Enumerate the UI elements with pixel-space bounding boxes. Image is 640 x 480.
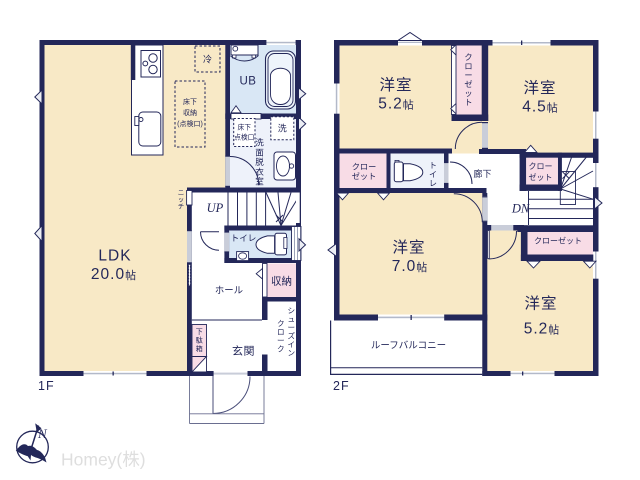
svg-text:面: 面 [255, 147, 264, 157]
svg-text:Homey(株): Homey(株) [61, 450, 146, 470]
svg-text:点検口: 点検口 [234, 133, 254, 142]
svg-text:トイレ: トイレ [231, 233, 257, 243]
svg-text:床下: 床下 [183, 97, 197, 106]
svg-text:チ: チ [178, 203, 185, 211]
svg-text:冷: 冷 [203, 54, 212, 65]
svg-text:N: N [37, 426, 48, 441]
svg-text:洋室: 洋室 [524, 295, 557, 313]
svg-text:クロー: クロー [352, 162, 377, 171]
svg-text:衣: 衣 [255, 166, 264, 177]
svg-text:UP: UP [207, 201, 224, 215]
svg-text:ゼット: ゼット [529, 172, 553, 182]
svg-text:収納: 収納 [183, 108, 197, 117]
svg-text:ッ: ッ [464, 89, 472, 98]
svg-text:ゼット: ゼット [352, 171, 377, 181]
svg-text:ー: ー [464, 71, 472, 80]
svg-text:UB: UB [240, 76, 257, 88]
svg-text:ク: ク [464, 53, 472, 62]
svg-text:ニ: ニ [178, 190, 185, 197]
svg-text:イ: イ [429, 170, 437, 179]
svg-text:床下: 床下 [238, 123, 252, 132]
svg-text:箱: 箱 [196, 344, 203, 353]
svg-text:レ: レ [429, 179, 437, 188]
svg-text:室: 室 [255, 176, 264, 187]
svg-text:ト: ト [429, 161, 437, 170]
svg-text:DN: DN [511, 202, 530, 216]
svg-text:洋室: 洋室 [523, 79, 556, 97]
svg-text:ト: ト [464, 98, 472, 107]
svg-text:ッ: ッ [178, 197, 185, 204]
svg-text:洋室: 洋室 [392, 239, 425, 257]
svg-text:洗: 洗 [255, 137, 264, 148]
svg-text:駄: 駄 [196, 336, 203, 345]
svg-text:LDK: LDK [98, 248, 131, 265]
svg-text:玄関: 玄関 [232, 344, 255, 358]
svg-text:洗: 洗 [278, 123, 287, 134]
svg-text:収納: 収納 [271, 275, 292, 288]
svg-text:2F: 2F [333, 379, 350, 393]
svg-text:ルーフバルコニー: ルーフバルコニー [371, 341, 446, 352]
svg-text:ン: ン [288, 349, 296, 358]
svg-text:1F: 1F [38, 379, 55, 393]
svg-text:廊下: 廊下 [473, 168, 491, 179]
svg-text:洋室: 洋室 [379, 76, 412, 94]
svg-text:(点検口): (点検口) [177, 119, 203, 128]
svg-text:クローゼット: クローゼット [534, 236, 582, 246]
svg-text:ク: ク [277, 345, 285, 354]
svg-text:ズ: ズ [288, 331, 296, 341]
svg-text:ホール: ホール [215, 285, 243, 296]
svg-text:ロ: ロ [464, 62, 472, 71]
svg-text:ゼ: ゼ [464, 79, 472, 89]
svg-text:脱: 脱 [255, 156, 264, 167]
svg-text:クロー: クロー [529, 162, 553, 171]
svg-text:下: 下 [196, 328, 203, 336]
